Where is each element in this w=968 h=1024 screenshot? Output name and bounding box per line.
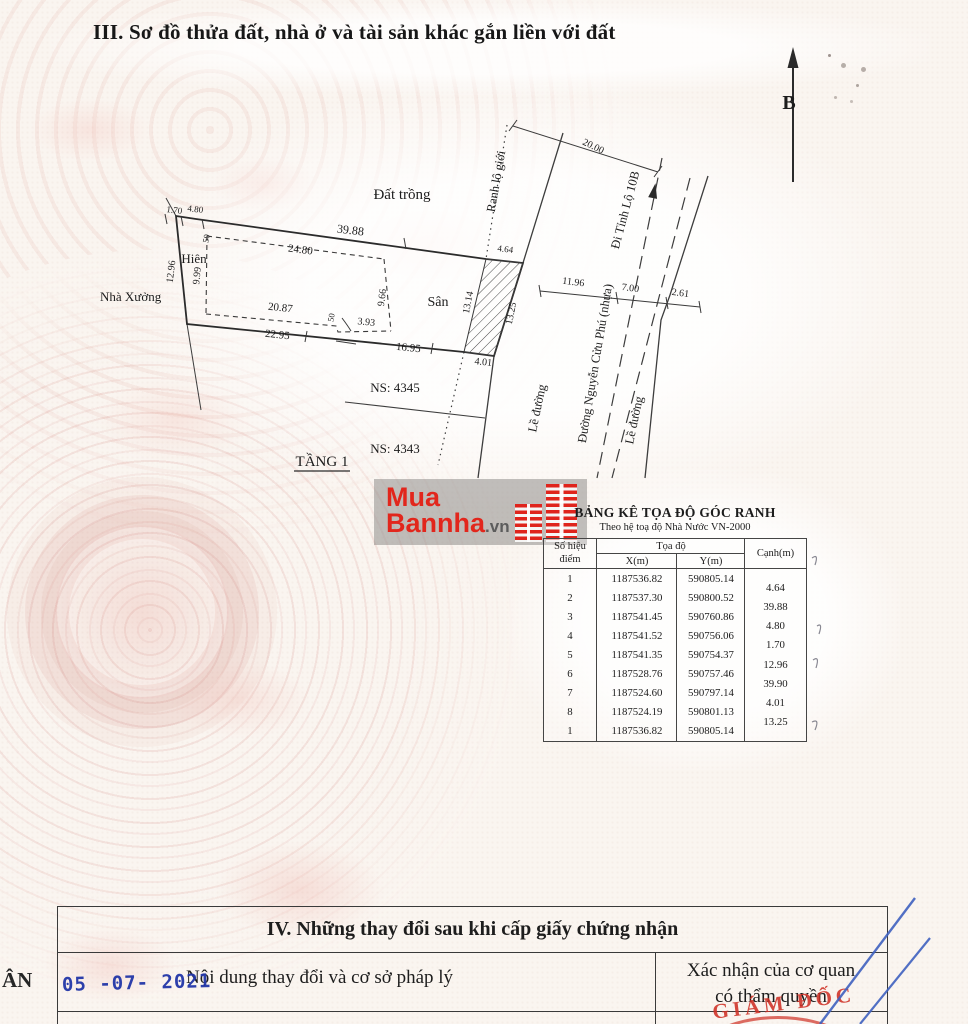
- table-cell: 590805.14: [677, 569, 745, 588]
- edge-length: 39.90: [745, 678, 806, 690]
- road-direction-arrow-icon: [648, 182, 660, 198]
- dim-inner-bottom: 20.87: [267, 301, 293, 316]
- column-x-coords: 1187536.82 1187537.30 1187541.45 1187541…: [596, 569, 677, 741]
- page-edge-text: ÂN: [2, 968, 32, 993]
- building-icon: [515, 504, 542, 542]
- edge-length: 12.96: [745, 659, 806, 671]
- table-cell: 2: [544, 588, 596, 607]
- watermark-logo-line2: Bannha.vn: [386, 510, 510, 537]
- edge-length: 4.64: [745, 582, 806, 594]
- shoulder-label-left: Lề đường: [525, 382, 549, 433]
- dim-shoulder-east: 2.61: [671, 287, 690, 300]
- table-cell: 1187524.19: [597, 703, 677, 722]
- watermark-logo-suffix: .vn: [485, 517, 510, 536]
- watermark-logo-line1: Mua: [386, 484, 440, 511]
- table-cell: 590756.06: [677, 626, 745, 645]
- coordinate-table-title: BẢNG KÊ TỌA ĐỘ GÓC RANH: [543, 505, 807, 521]
- building-label: Nhà Xưởng: [100, 289, 162, 304]
- dim-top-hatch: 4.64: [497, 243, 514, 255]
- table-cell: 1187541.35: [597, 645, 677, 664]
- table-cell: 1: [544, 569, 596, 588]
- coordinate-table: BẢNG KÊ TỌA ĐỘ GÓC RANH Theo hệ toạ độ N…: [543, 505, 807, 742]
- column-edge-lengths: 4.64 39.88 4.80 1.70 12.96 39.90 4.01 13…: [744, 569, 806, 741]
- dim-notch: 3.93: [357, 316, 376, 329]
- dim-offset-mid: 50: [325, 312, 336, 322]
- column-point-ids: 1 2 3 4 5 6 7 8 1: [544, 569, 596, 741]
- edge-length: 39.88: [745, 601, 806, 613]
- header-point-id: Số hiệu điểm: [544, 539, 596, 568]
- parcel-label-1: NS: 4345: [370, 380, 419, 395]
- road-edge-east: [645, 176, 708, 478]
- table-cell: 590800.52: [677, 588, 745, 607]
- edge-length: 13.25: [745, 716, 806, 728]
- yard-label: Sân: [428, 295, 449, 310]
- dim-road-width: 20.00: [581, 137, 606, 157]
- road-direction-label: Đi Tỉnh Lộ 10B: [608, 170, 642, 251]
- dim-gap-west: 11.96: [562, 276, 585, 290]
- header-edge: Cạnh(m): [744, 539, 806, 568]
- dim-bottom-right: 16.95: [395, 341, 421, 356]
- north-arrowhead-icon: [788, 47, 799, 68]
- table-cell: 5: [544, 645, 596, 664]
- header-y: Y(m): [676, 554, 745, 568]
- shoulder-label-right: Lề đường: [622, 394, 646, 445]
- dim-top-left-2: 4.80: [187, 203, 204, 215]
- section4-title: IV. Những thay đổi sau khi cấp giấy chứn…: [58, 907, 887, 953]
- boundary-label: Ranh lộ giới: [484, 149, 509, 213]
- table-cell: 8: [544, 703, 596, 722]
- edge-length: 4.01: [745, 697, 806, 709]
- table-cell: 6: [544, 665, 596, 684]
- background-emblem-core: [55, 525, 229, 699]
- floor-label: TẦNG 1: [296, 453, 349, 470]
- change-content-label: Nội dung thay đổi và cơ sở pháp lý: [186, 967, 453, 989]
- dim-road-asphalt: 7.00: [621, 282, 640, 295]
- table-cell: 590757.46: [677, 665, 745, 684]
- table-cell: 1187524.60: [597, 684, 677, 703]
- dim-bottom-hatch: 4.01: [474, 356, 493, 369]
- dim-left-edge: 12.96: [165, 260, 179, 284]
- table-cell: 3: [544, 607, 596, 626]
- table-cell: 1187541.45: [597, 607, 677, 626]
- table-cell: 590797.14: [677, 684, 745, 703]
- table-cell: 1187541.52: [597, 626, 677, 645]
- table-cell: 1187528.76: [597, 665, 677, 684]
- porch-label: Hiên: [181, 251, 207, 266]
- coordinate-table-header: Số hiệu điểm Tọa độ X(m) Y(m) Cạnh(m): [544, 539, 806, 569]
- table-cell: 590805.14: [677, 722, 745, 741]
- coordinate-table-body: 1 2 3 4 5 6 7 8 1 1187536.82 1187537.30 …: [544, 569, 806, 741]
- parcel-divider-line: [345, 402, 485, 418]
- table-cell: 590760.86: [677, 607, 745, 626]
- parcel-label-2: NS: 4343: [370, 441, 419, 456]
- column-y-coords: 590805.14 590800.52 590760.86 590756.06 …: [676, 569, 745, 741]
- header-x: X(m): [596, 554, 677, 568]
- pen-check-marks: [812, 557, 821, 730]
- setback-line-dotted-bottom: [438, 352, 464, 465]
- dim-inner-left: 9.99: [191, 266, 204, 285]
- table-cell: 7: [544, 684, 596, 703]
- coordinate-table-subtitle: Theo hệ toạ độ Nhà Nước VN-2000: [543, 522, 807, 533]
- boundary-extension-bottom-left: [187, 324, 201, 410]
- table-cell: 590754.37: [677, 645, 745, 664]
- date-stamp: 05 -07- 2021: [62, 970, 212, 996]
- area-label: Đất trồng: [373, 187, 431, 203]
- table-cell: 4: [544, 626, 596, 645]
- table-cell: 1: [544, 722, 596, 741]
- north-label: B: [782, 92, 795, 114]
- dim-top-main: 39.88: [336, 221, 365, 238]
- north-arrow: B: [782, 47, 798, 182]
- header-coordinates: Tọa độ: [596, 539, 745, 554]
- certificate-page: III. Sơ đồ thửa đất, nhà ở và tài sản kh…: [0, 0, 968, 1024]
- dim-inner-right: 9.66: [376, 288, 389, 307]
- dim-top-left-1: 1.70: [166, 204, 183, 216]
- edge-length: 1.70: [745, 639, 806, 651]
- dim-offset-top: 50: [200, 233, 211, 243]
- plot-diagram: B: [0, 0, 968, 500]
- table-cell: 1187536.82: [597, 569, 677, 588]
- edge-length: 4.80: [745, 620, 806, 632]
- table-cell: 1187536.82: [597, 722, 677, 741]
- table-cell: 590801.13: [677, 703, 745, 722]
- dim-inner-top: 24.80: [287, 243, 314, 258]
- dim-bottom-left: 22.95: [264, 328, 290, 343]
- table-cell: 1187537.30: [597, 588, 677, 607]
- coordinate-table-grid: Số hiệu điểm Tọa độ X(m) Y(m) Cạnh(m) 1 …: [543, 538, 807, 742]
